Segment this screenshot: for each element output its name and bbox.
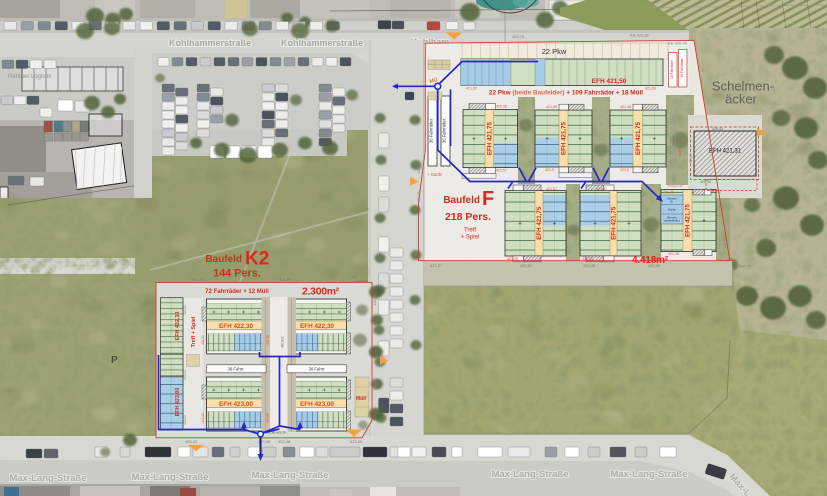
- svg-text:218 Pers.: 218 Pers.: [445, 211, 491, 223]
- svg-text:420,81: 420,81: [356, 279, 369, 284]
- svg-text:EFH 422,30: EFH 422,30: [175, 312, 181, 341]
- svg-text:421,66: 421,66: [279, 277, 292, 282]
- svg-text:421,5: 421,5: [712, 190, 721, 194]
- svg-text:422,50: 422,50: [373, 380, 377, 391]
- svg-text:422,02: 422,02: [183, 415, 187, 425]
- svg-text:420,08: 420,08: [496, 105, 507, 109]
- svg-text:Küche: Küche: [668, 208, 676, 212]
- svg-text:äcker: äcker: [725, 92, 757, 107]
- svg-text:421,5: 421,5: [545, 168, 554, 172]
- svg-text:423,00: 423,00: [266, 413, 270, 423]
- svg-text:EFH 421,75: EFH 421,75: [536, 206, 543, 240]
- svg-text:18 Fahrräder: 18 Fahrräder: [680, 58, 684, 78]
- svg-text:422,12: 422,12: [183, 305, 187, 315]
- svg-text:420,40: 420,40: [723, 238, 727, 249]
- svg-text:Treff: Treff: [464, 228, 476, 234]
- svg-text:421,57: 421,57: [546, 187, 557, 191]
- svg-text:KD 420,75: KD 420,75: [732, 264, 752, 269]
- svg-text:36 Fahrr.: 36 Fahrr.: [228, 367, 245, 372]
- svg-text:Baufeld: Baufeld: [205, 254, 242, 265]
- svg-text:422,30: 422,30: [266, 335, 270, 345]
- svg-text:72 Fahrräder + 12 Müll: 72 Fahrräder + 12 Müll: [205, 289, 269, 295]
- svg-text:421,50: 421,50: [192, 277, 205, 282]
- svg-text:423,00: 423,00: [201, 413, 205, 423]
- svg-text:421,50: 421,50: [645, 87, 656, 91]
- svg-text:Ei.: Ei.: [670, 200, 673, 204]
- svg-text:EFH 421,50: EFH 421,50: [592, 78, 627, 85]
- svg-text:+ Gärtle: + Gärtle: [427, 172, 443, 177]
- svg-text:421,99: 421,99: [546, 105, 557, 109]
- svg-text:420,70: 420,70: [512, 34, 525, 39]
- svg-text:420,22: 420,22: [185, 439, 198, 444]
- svg-text:EFH 421,75: EFH 421,75: [611, 206, 618, 240]
- svg-text:EFH 423,00: EFH 423,00: [175, 388, 181, 417]
- svg-text:420,45: 420,45: [417, 163, 421, 174]
- svg-text:420,55: 420,55: [417, 192, 421, 203]
- svg-text:36 Fahrräder: 36 Fahrräder: [429, 118, 434, 143]
- svg-text:421,38: 421,38: [668, 252, 679, 256]
- svg-text:+ Spiel: + Spiel: [461, 235, 480, 241]
- svg-text:421,90: 421,90: [148, 406, 152, 417]
- svg-text:EFH 421,75: EFH 421,75: [561, 121, 568, 155]
- svg-text:Kohlhammerstraße: Kohlhammerstraße: [281, 38, 363, 48]
- svg-text:420,37: 420,37: [689, 153, 693, 163]
- svg-text:421,70: 421,70: [148, 353, 152, 364]
- svg-text:P: P: [111, 355, 118, 366]
- svg-text:2.300m²: 2.300m²: [302, 286, 340, 298]
- svg-text:22 Pkw: 22 Pkw: [542, 47, 567, 56]
- svg-text:Baufeld: Baufeld: [443, 195, 480, 206]
- svg-text:420,38: 420,38: [278, 439, 291, 444]
- svg-text:K2: K2: [245, 248, 269, 269]
- svg-text:EFH 422,30: EFH 422,30: [219, 323, 254, 330]
- svg-text:22 Pkw (beide Baufelder) + 109: 22 Pkw (beide Baufelder) + 109 Fahrräder…: [489, 90, 643, 97]
- svg-text:423,00: 423,00: [350, 439, 363, 444]
- svg-text:421,67: 421,67: [430, 263, 443, 268]
- svg-text:422,02: 422,02: [183, 370, 187, 380]
- svg-text:Max-Lang-Straße: Max-Lang-Straße: [251, 470, 328, 481]
- svg-text:Max-Lang-Straße: Max-Lang-Straße: [9, 473, 86, 484]
- svg-text:Treppe Lift: Treppe Lift: [668, 184, 682, 188]
- svg-text:421,50: 421,50: [466, 87, 477, 91]
- svg-text:422,30: 422,30: [201, 335, 205, 345]
- svg-text:421,57: 421,57: [596, 187, 607, 191]
- svg-text:F: F: [482, 188, 494, 210]
- svg-text:4% Gef.: 4% Gef.: [281, 336, 285, 348]
- svg-text:Max-Lang-Straße: Max-Lang-Straße: [610, 469, 687, 480]
- svg-text:421,5: 421,5: [620, 168, 629, 172]
- svg-text:36 Fahrräder: 36 Fahrräder: [442, 118, 447, 143]
- svg-text:4.418m²: 4.418m²: [632, 255, 669, 266]
- svg-text:421,38: 421,38: [620, 105, 631, 109]
- svg-text:Max-Lang-Straße: Max-Lang-Straße: [491, 469, 568, 480]
- svg-text:421,57: 421,57: [496, 169, 507, 173]
- svg-text:EFH 421,75: EFH 421,75: [487, 122, 494, 156]
- svg-text:KD 420,49: KD 420,49: [668, 41, 688, 46]
- svg-text:18 Fahrräder: 18 Fahrräder: [670, 59, 674, 79]
- svg-text:421,75: 421,75: [663, 191, 674, 195]
- svg-text:421,40: 421,40: [148, 312, 152, 323]
- svg-text:Max-Lang-Straße: Max-Lang-Straße: [131, 472, 208, 483]
- svg-text:EFH 423,00: EFH 423,00: [219, 401, 254, 408]
- svg-text:Müll: Müll: [356, 396, 367, 402]
- svg-text:Treff + Spiel: Treff + Spiel: [191, 316, 197, 347]
- svg-text:422,38: 422,38: [373, 295, 377, 306]
- svg-text:Rentner Logistik: Rentner Logistik: [8, 74, 52, 80]
- svg-text:36 Fahrr.: 36 Fahrr.: [309, 367, 326, 372]
- svg-text:420,50: 420,50: [700, 180, 711, 184]
- svg-text:420,46: 420,46: [583, 263, 596, 268]
- svg-text:EFH 421,31: EFH 421,31: [709, 149, 742, 155]
- svg-text:EFH 421,75: EFH 421,75: [685, 203, 692, 237]
- svg-text:420,97: 420,97: [520, 263, 533, 268]
- svg-text:Gärtle: Gärtle: [678, 147, 682, 156]
- svg-text:144 Pers.: 144 Pers.: [213, 268, 260, 280]
- svg-text:EFH 422,30: EFH 422,30: [300, 323, 335, 330]
- svg-text:KD 420,82: KD 420,82: [630, 33, 650, 38]
- svg-text:Kohlhammerstraße: Kohlhammerstraße: [169, 38, 251, 48]
- svg-text:420,43: 420,43: [712, 127, 723, 131]
- svg-text:EFH 421,75: EFH 421,75: [635, 121, 642, 155]
- svg-text:EFH 423,00: EFH 423,00: [300, 401, 335, 408]
- svg-text:(wohnberei.): (wohnberei.): [664, 219, 680, 223]
